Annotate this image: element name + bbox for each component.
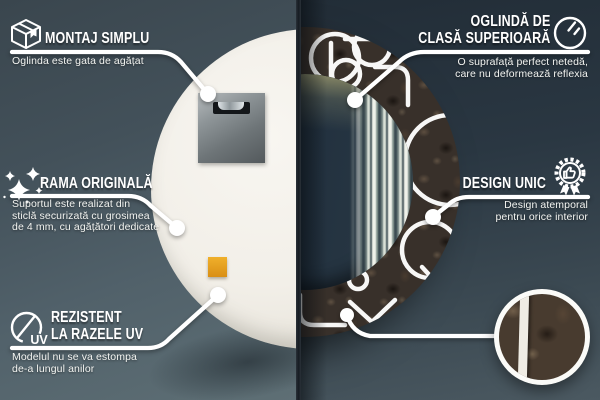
oglinda-title: OGLINDĂ DE CLASĂ SUPERIOARĂ	[381, 14, 550, 47]
oglinda-subtitle: O suprafață perfect netedă, care nu defo…	[455, 57, 588, 80]
product-infographic: MONTAJ SIMPLU Oglinda este gata de agăța…	[0, 0, 600, 400]
uv-title: REZISTENT LA RAZELE UV	[51, 310, 169, 343]
rama-subtitle: Suportul este realizat din sticlă securi…	[12, 199, 159, 234]
hanger-slot	[213, 102, 250, 114]
orange-sticker	[208, 257, 227, 277]
pattern-stripe	[518, 290, 529, 384]
design-subtitle: Design atemporal pentru orice interior	[495, 200, 588, 223]
uv-sun-icon: UV	[9, 310, 51, 352]
montaj-subtitle: Oglinda este gata de agățat	[12, 56, 144, 68]
package-icon	[7, 15, 45, 53]
uv-subtitle: Modelul nu se va estompa de-a lungul ani…	[12, 352, 137, 375]
photo-divider	[296, 0, 301, 400]
shine-mirror-icon	[551, 14, 589, 52]
hanger-hook	[218, 102, 244, 110]
award-badge-icon	[548, 155, 592, 201]
montaj-title: MONTAJ SIMPLU	[45, 31, 179, 48]
rama-title: RAMA ORIGINALĂ	[40, 176, 184, 193]
hanging-plate	[198, 93, 265, 163]
design-title: DESIGN UNIC	[439, 176, 546, 193]
svg-text:UV: UV	[30, 333, 48, 347]
texture-zoom-circle	[494, 289, 590, 385]
